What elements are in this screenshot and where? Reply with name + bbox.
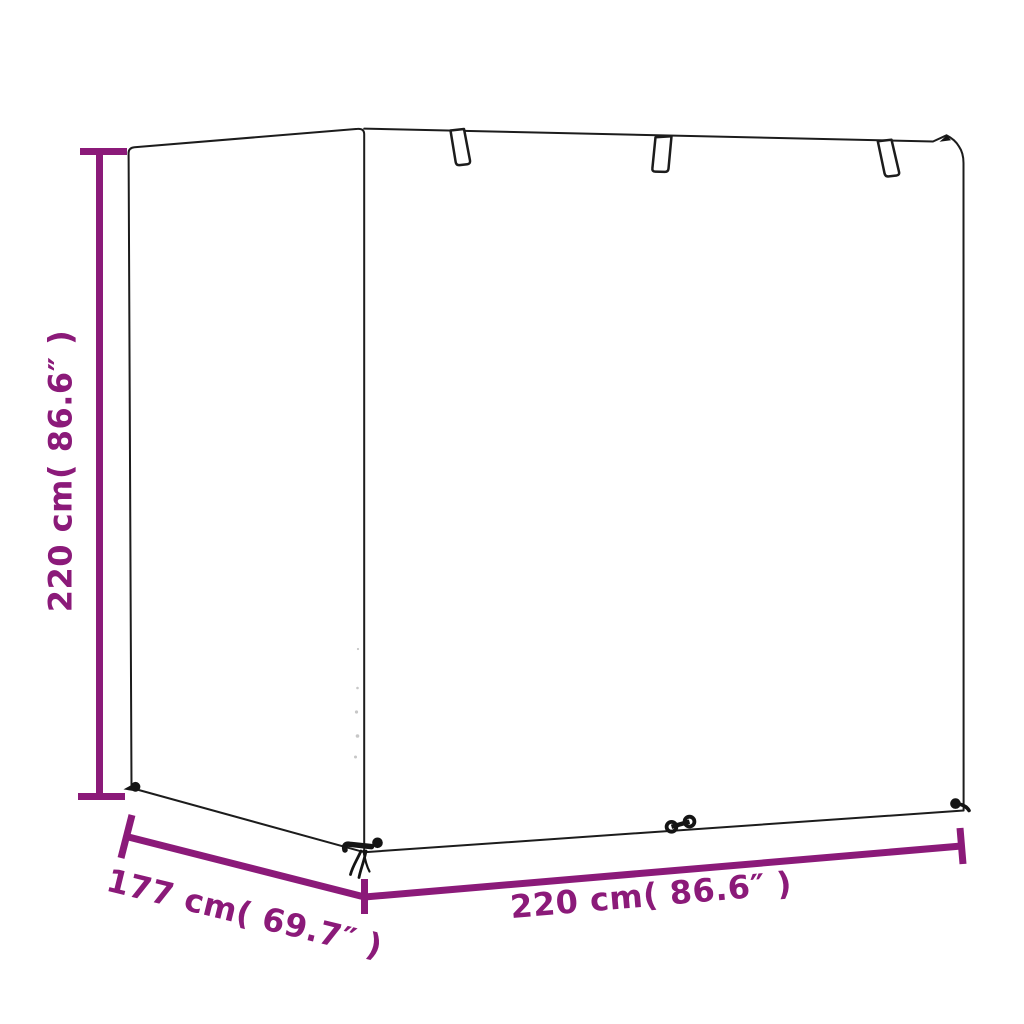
cover-front-panel bbox=[364, 129, 963, 853]
product-dimension-image: 220 cm( 86.6″ ) 177 cm( 69.7″ ) 220 cm( … bbox=[0, 0, 1024, 1024]
height-dimension-label: 220 cm( 86.6″ ) bbox=[42, 330, 80, 613]
cordlock-icon bbox=[345, 838, 383, 878]
height-dimension-line bbox=[78, 152, 127, 797]
cover-outline bbox=[129, 129, 964, 853]
cover-side-panel bbox=[129, 129, 365, 852]
depth-dimension-label: 177 cm( 69.7″ ) bbox=[103, 861, 386, 965]
dimension-diagram-canvas: 220 cm( 86.6″ ) 177 cm( 69.7″ ) 220 cm( … bbox=[0, 0, 1024, 1024]
strap-icon bbox=[652, 136, 671, 172]
